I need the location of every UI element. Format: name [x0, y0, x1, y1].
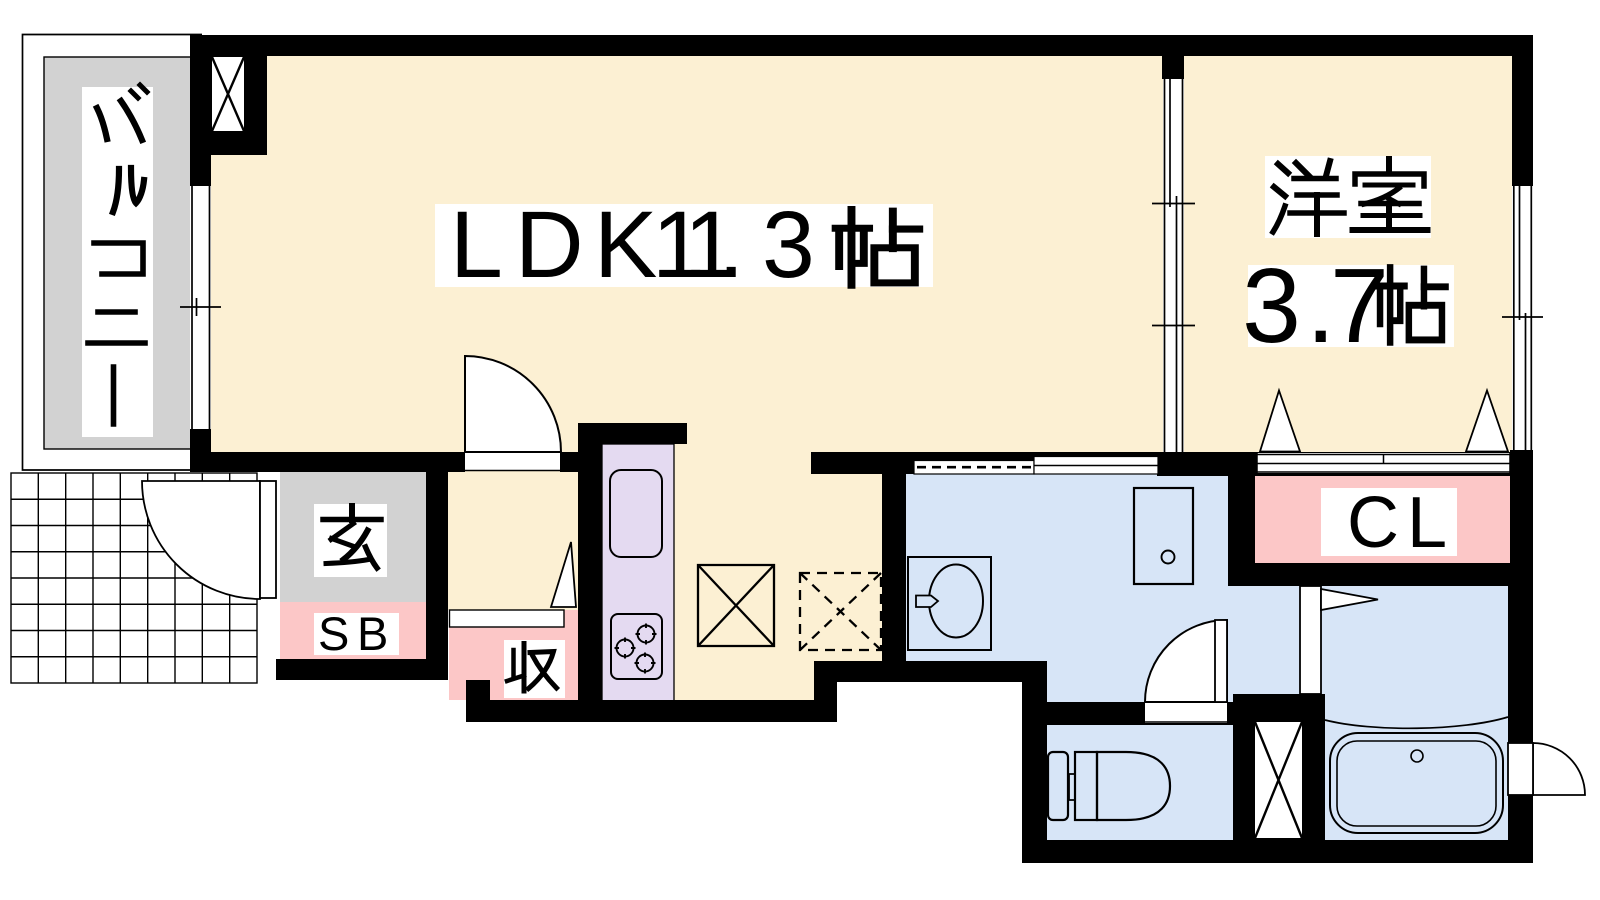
svg-text:3.7: 3.7	[1242, 247, 1389, 365]
svg-text:LDK: LDK	[450, 192, 657, 298]
svg-text:11.3: 11.3	[652, 192, 815, 298]
svg-text:CL: CL	[1347, 483, 1447, 563]
